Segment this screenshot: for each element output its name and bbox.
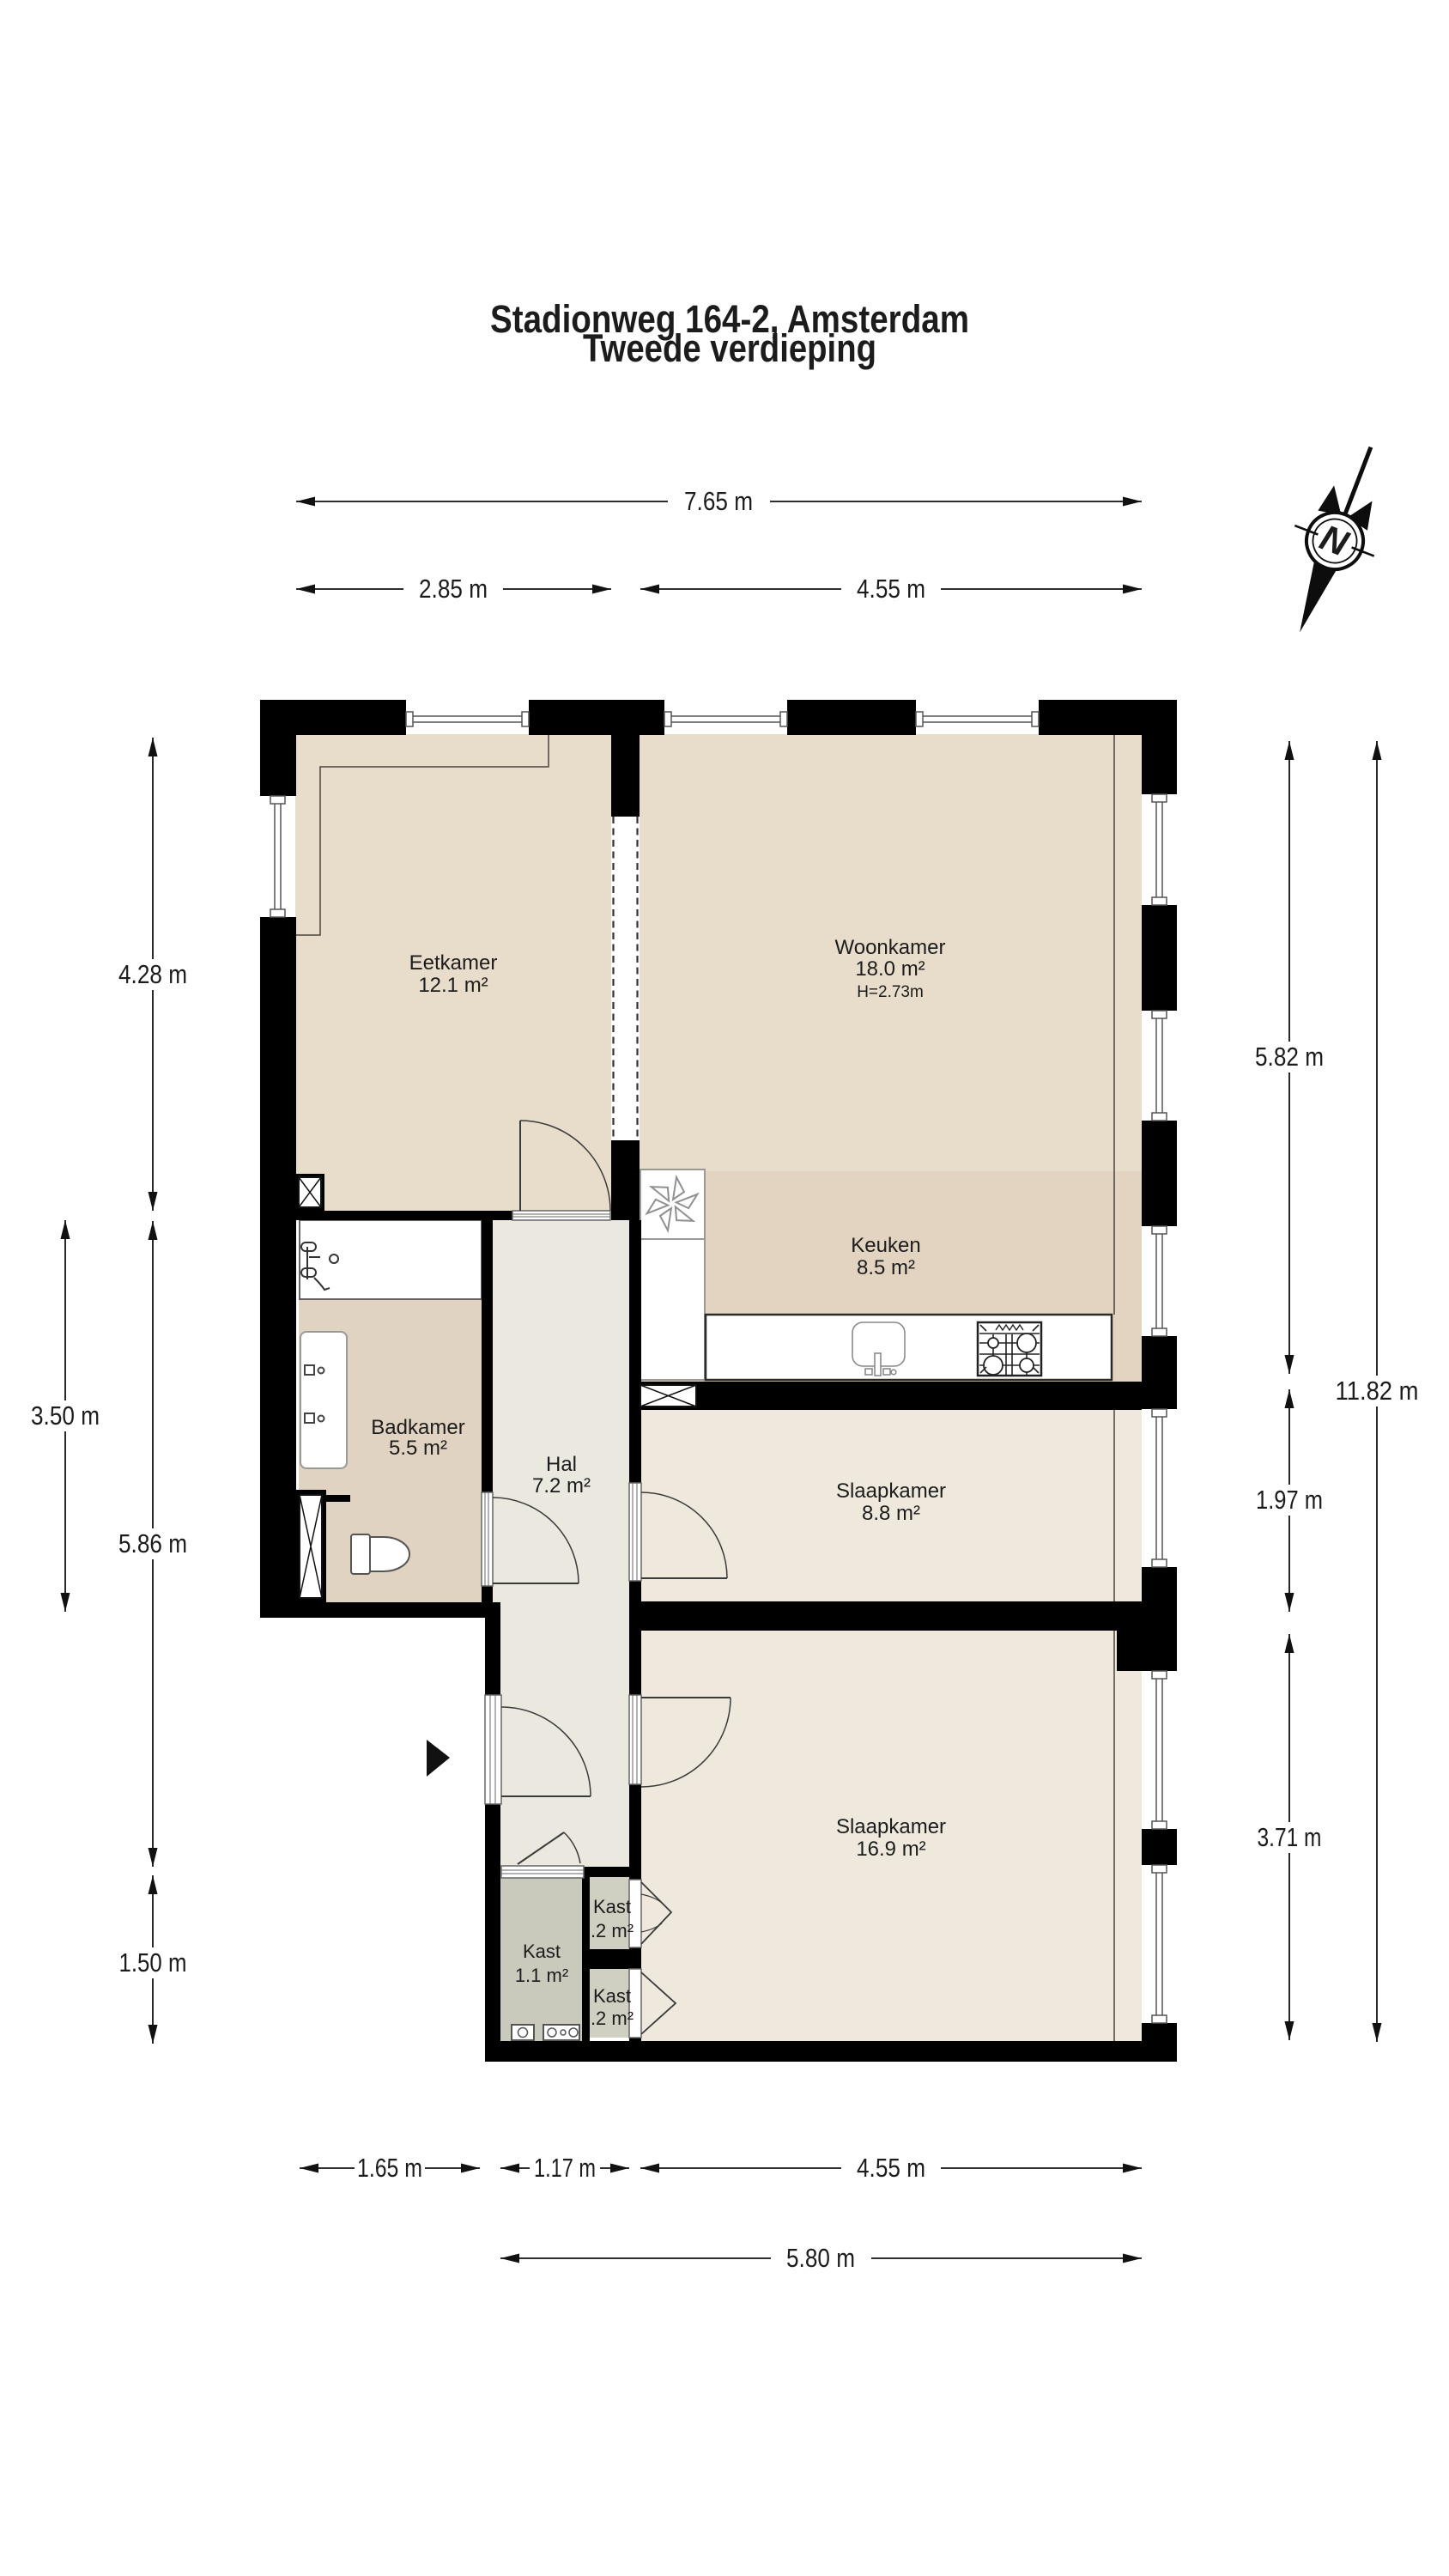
svg-text:.2 m²: .2 m² <box>591 2008 634 2029</box>
svg-text:Eetkamer: Eetkamer <box>409 951 498 975</box>
svg-text:H=2.73m: H=2.73m <box>857 983 924 1001</box>
svg-text:4.28 m: 4.28 m <box>118 959 187 989</box>
svg-text:Slaapkamer: Slaapkamer <box>836 1479 946 1503</box>
svg-text:11.82 m: 11.82 m <box>1336 1376 1419 1406</box>
svg-text:Badkamer: Badkamer <box>371 1416 464 1439</box>
svg-text:Woonkamer: Woonkamer <box>835 936 946 959</box>
svg-text:4.55 m: 4.55 m <box>857 574 925 604</box>
svg-text:5.80 m: 5.80 m <box>786 2243 855 2273</box>
svg-text:7.65 m: 7.65 m <box>684 486 753 516</box>
svg-text:12.1 m²: 12.1 m² <box>418 974 488 997</box>
svg-text:Kast: Kast <box>593 1896 631 1917</box>
svg-text:4.55 m: 4.55 m <box>857 2153 925 2183</box>
svg-text:Kast: Kast <box>593 1985 631 2007</box>
svg-text:1.50 m: 1.50 m <box>119 1947 187 1978</box>
svg-text:18.0 m²: 18.0 m² <box>855 957 925 981</box>
svg-text:2.85 m: 2.85 m <box>419 574 488 604</box>
svg-text:8.8 m²: 8.8 m² <box>862 1502 920 1525</box>
svg-text:.2 m²: .2 m² <box>591 1920 634 1941</box>
svg-text:Slaapkamer: Slaapkamer <box>836 1815 946 1838</box>
svg-text:Tweede verdieping: Tweede verdieping <box>583 326 876 370</box>
svg-text:5.82 m: 5.82 m <box>1255 1042 1324 1072</box>
svg-text:Keuken: Keuken <box>851 1234 920 1257</box>
svg-text:7.2 m²: 7.2 m² <box>532 1474 591 1498</box>
svg-text:1.65 m: 1.65 m <box>357 2153 422 2183</box>
svg-text:8.5 m²: 8.5 m² <box>857 1256 915 1279</box>
svg-text:16.9 m²: 16.9 m² <box>856 1838 925 1861</box>
svg-text:1.1 m²: 1.1 m² <box>515 1965 568 1986</box>
svg-text:5.5 m²: 5.5 m² <box>389 1437 447 1460</box>
svg-text:3.50 m: 3.50 m <box>31 1400 100 1431</box>
svg-text:1.97 m: 1.97 m <box>1256 1485 1323 1515</box>
svg-text:Hal: Hal <box>546 1453 577 1476</box>
svg-text:Kast: Kast <box>523 1941 561 1962</box>
svg-text:3.71 m: 3.71 m <box>1258 1822 1322 1852</box>
svg-text:1.17 m: 1.17 m <box>534 2153 596 2183</box>
svg-text:5.86 m: 5.86 m <box>118 1528 187 1558</box>
